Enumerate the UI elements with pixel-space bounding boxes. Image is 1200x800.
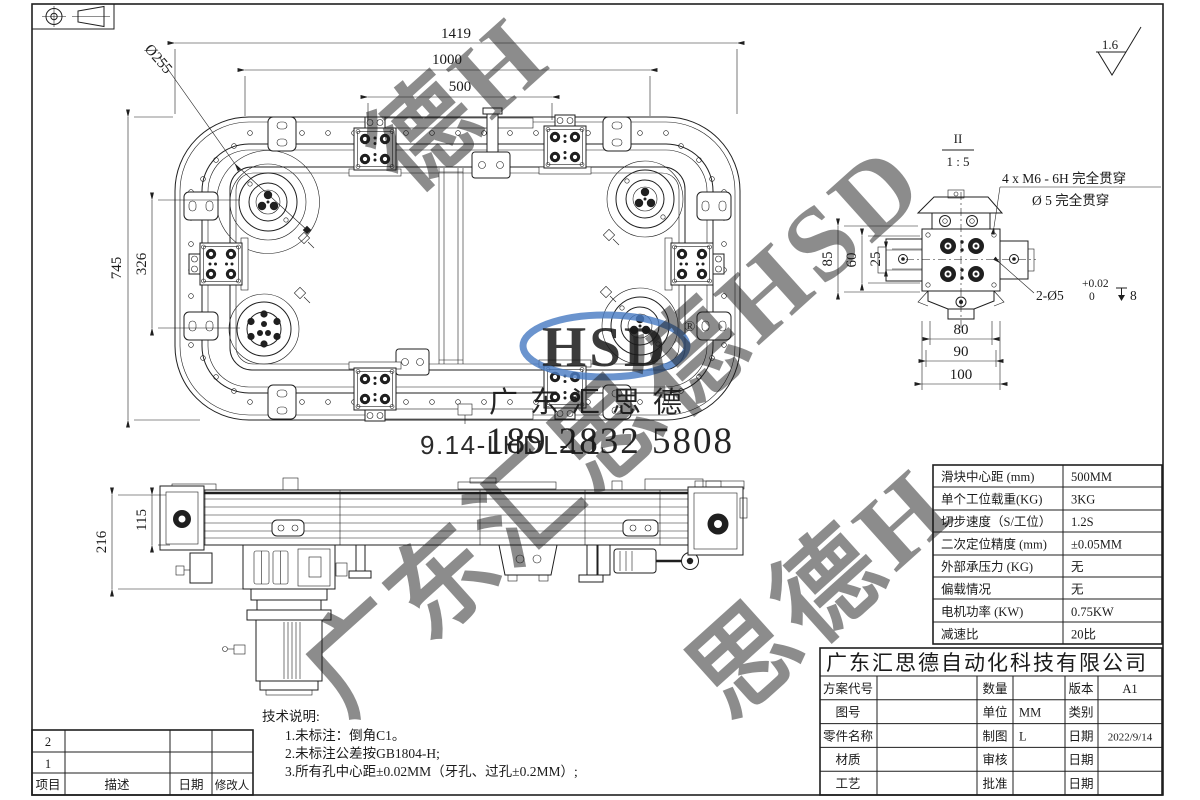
dowel-tolerance-lower: 0 (1089, 291, 1095, 303)
dim-745: 745 (109, 257, 125, 280)
drawing-sheet: 1.6 (0, 0, 1200, 800)
titleblock-label: 类别 (1068, 706, 1093, 720)
titleblock-label: 图号 (835, 706, 860, 720)
drive-end-cap (160, 486, 212, 583)
corner-wheel-top-left (230, 164, 306, 240)
titleblock-label: 日期 (1068, 753, 1093, 767)
mounting-bracket (268, 385, 296, 419)
mounting-bracket (184, 312, 218, 340)
spec-value: ±0.05MM (1071, 538, 1122, 552)
titleblock-label: 日期 (1068, 777, 1093, 791)
callout-tapped-holes: 4 x M6 - 6H 完全贯穿 (1002, 170, 1126, 186)
note-item: 2.未标注公差按GB1804-H; (285, 746, 440, 761)
dim-80: 80 (954, 322, 969, 338)
section-label: II (954, 131, 963, 146)
titleblock-value-version: A1 (1122, 682, 1137, 696)
pallet-slider (189, 238, 248, 290)
note-item: 1.未标注：倒角C1。 (285, 728, 405, 743)
mounting-bracket (603, 117, 631, 151)
spec-value: 500MM (1071, 470, 1112, 484)
pallet-slider (539, 115, 591, 174)
dim-115: 115 (134, 509, 150, 531)
titleblock-label: 制图 (982, 730, 1007, 744)
revision-header-item: 项目 (35, 778, 60, 792)
spec-label: 滑块中心距 (mm) (941, 469, 1034, 484)
titleblock-value-drafter: L (1019, 730, 1027, 744)
spec-value: 无 (1071, 560, 1084, 574)
idler-end-block (688, 481, 747, 555)
revision-header-date: 日期 (178, 778, 203, 792)
titleblock-label: 工艺 (835, 777, 860, 791)
corner-wheel-bottom-left (229, 294, 299, 364)
title-block: 广东汇思德自动化科技有限公司 方案代号 图号 零件名称 材质 工艺 数量 单位 … (820, 648, 1162, 795)
revision-table: 2 1 项目 描述 日期 修改人 (32, 730, 253, 795)
drawing-canvas: 1.6 (0, 0, 1200, 800)
titleblock-value-date: 2022/9/14 (1108, 732, 1153, 744)
spec-label: 电机功率 (KW) (941, 604, 1023, 619)
dim-216: 216 (94, 530, 110, 553)
titleblock-label: 材质 (835, 753, 860, 767)
belt-tensioner (598, 545, 699, 575)
company-name: 广东汇思德自动化科技有限公司 (826, 651, 1148, 675)
technical-notes: 技术说明: 1.未标注：倒角C1。 2.未标注公差按GB1804-H; 3.所有… (262, 709, 578, 779)
titleblock-label: 审核 (982, 752, 1008, 767)
spec-table: 滑块中心距 (mm) 500MM 单个工位载重(KG) 3KG 切步速度（S/工… (933, 465, 1162, 644)
titleblock-label: 日期 (1068, 730, 1093, 744)
dim-90: 90 (954, 344, 969, 360)
callout-through-hole: Ø 5 完全贯穿 (1032, 192, 1109, 208)
spec-value: 1.2S (1071, 515, 1094, 529)
spec-label: 外部承压力 (KG) (941, 559, 1033, 574)
revision-header-description: 描述 (104, 778, 130, 792)
spec-value: 0.75KW (1071, 605, 1114, 619)
titleblock-label: 数量 (982, 681, 1007, 696)
rail-plate (272, 520, 304, 536)
spec-label: 单个工位载重(KG) (941, 492, 1042, 507)
dim-326: 326 (134, 252, 150, 275)
notes-title: 技术说明: (262, 709, 320, 724)
mounting-bracket (697, 192, 731, 220)
revision-header-editor: 修改人 (215, 778, 250, 792)
spec-value: 无 (1071, 583, 1084, 597)
spec-value: 20比 (1071, 628, 1096, 642)
belt-clamp-top-right (603, 229, 619, 245)
titleblock-label: 零件名称 (823, 729, 873, 744)
belt-clamp-bottom-left (294, 287, 310, 303)
spec-label: 减速比 (941, 628, 979, 642)
note-item: 3.所有孔中心距±0.02MM（牙孔、过孔±0.2MM）; (285, 764, 578, 779)
depth-symbol-icon (1116, 288, 1127, 301)
dim-100: 100 (950, 367, 973, 383)
titleblock-label: 版本 (1068, 682, 1094, 696)
belt-clamp-bottom-right (600, 286, 616, 302)
rail-plate (623, 520, 658, 536)
revision-item: 1 (45, 757, 51, 771)
titleblock-label: 单位 (982, 705, 1007, 720)
dowel-tolerance-upper: +0.02 (1082, 278, 1109, 290)
titleblock-label: 批准 (982, 776, 1007, 791)
mounting-bracket (184, 192, 218, 220)
section-scale: 1 : 5 (946, 154, 969, 169)
watermark-red-fragment-top: 德H (345, 0, 571, 213)
spec-value: 3KG (1071, 493, 1095, 507)
mounting-bracket (268, 117, 296, 151)
surface-roughness-symbol: 1.6 (1096, 27, 1141, 75)
roughness-value: 1.6 (1102, 37, 1119, 52)
belt-clamp-top-left (298, 232, 314, 248)
spec-label: 偏载情况 (941, 582, 992, 597)
callout-dowel-holes: 2-Ø5 (1036, 288, 1064, 303)
dowel-depth-value: 8 (1130, 288, 1137, 303)
titleblock-value-unit: MM (1019, 706, 1041, 720)
revision-item: 2 (45, 735, 51, 749)
corner-wheel-top-right (607, 161, 683, 237)
projection-symbol-icon (32, 4, 114, 29)
titleblock-label: 方案代号 (823, 681, 873, 696)
